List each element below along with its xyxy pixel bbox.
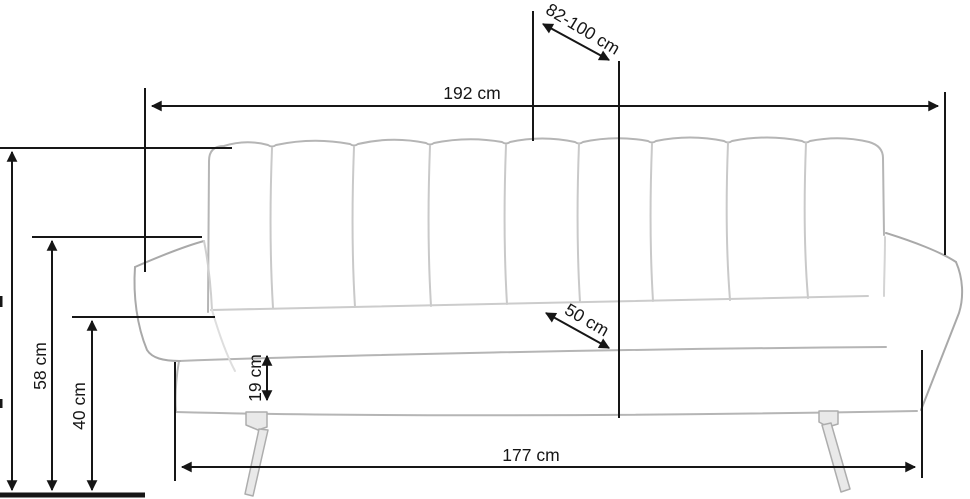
- sofa-backrest-outline: [208, 138, 884, 313]
- sofa-base-bottom-edge: [176, 411, 917, 415]
- sofa-backrest-seams: [271, 143, 808, 308]
- label-armrest-height: 58 cm: [30, 342, 50, 390]
- sofa-seat-front-edge: [179, 347, 886, 361]
- sofa-left-armrest-skirt: [212, 310, 235, 371]
- label-overall-width: 192 cm: [443, 83, 500, 103]
- label-seat-height: 40 cm: [69, 382, 89, 430]
- sofa-left-armrest-outer: [135, 267, 181, 361]
- dimension-armrest-height: [32, 237, 202, 490]
- sofa-dimension-diagram: 192 cm 82-100 cm 58 cm 40 cm 19 cm 50 cm…: [0, 0, 970, 499]
- dimension-backrest-recline: [533, 11, 619, 418]
- sofa-left-leg: [245, 429, 268, 496]
- cropped-label-mark: [0, 296, 3, 307]
- sofa-seat-back-junction: [211, 296, 868, 310]
- sofa-illustration: [135, 138, 963, 497]
- cropped-label-mark: [0, 399, 3, 408]
- diagram-canvas: 192 cm 82-100 cm 58 cm 40 cm 19 cm 50 cm…: [0, 0, 970, 499]
- sofa-right-armrest-inner: [884, 237, 885, 296]
- sofa-right-leg: [822, 423, 850, 492]
- label-base-width: 177 cm: [502, 445, 559, 465]
- sofa-left-leg-bracket: [246, 412, 267, 430]
- sofa-right-armrest-outer: [921, 262, 962, 410]
- dimension-overall-width: [145, 88, 945, 272]
- dimension-labels: 192 cm 82-100 cm 58 cm 40 cm 19 cm 50 cm…: [30, 0, 624, 465]
- dimension-overall-height: [0, 148, 232, 495]
- sofa-base-left-edge: [176, 361, 179, 412]
- label-seat-depth: 50 cm: [561, 299, 612, 340]
- label-seat-panel-height: 19 cm: [245, 354, 265, 402]
